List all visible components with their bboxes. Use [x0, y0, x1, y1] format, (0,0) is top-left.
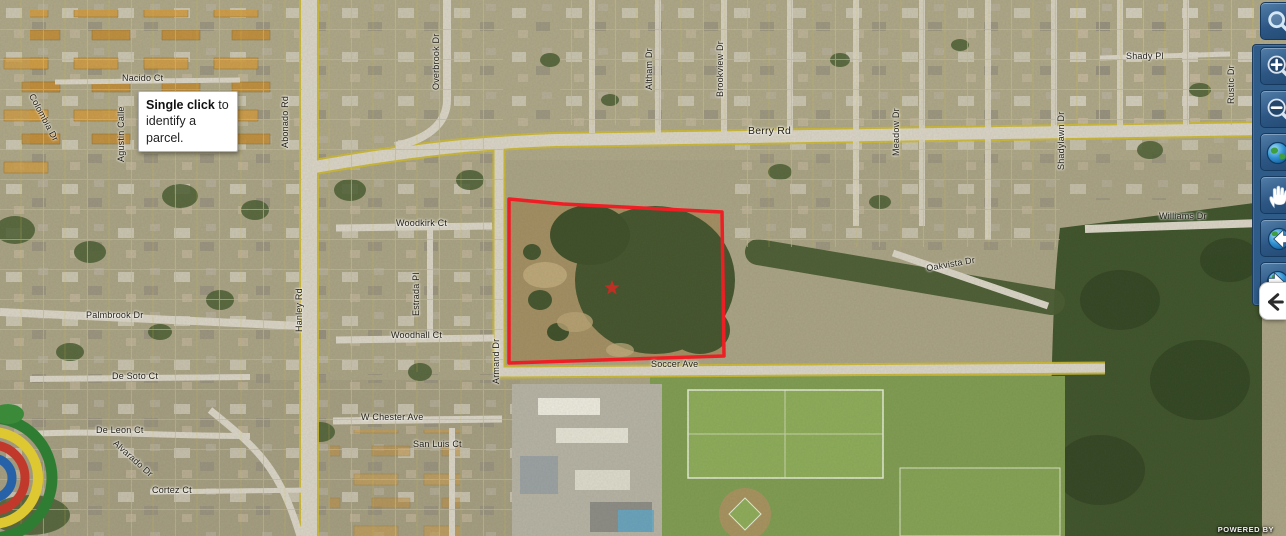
street-label: Hanley Rd [294, 288, 304, 332]
full-extent-globe-icon [1265, 139, 1286, 167]
zoom-out-button[interactable] [1260, 90, 1286, 128]
map-toolbar [1252, 0, 1286, 320]
street-label: Nacido Ct [122, 73, 163, 83]
street-label: Overbrook Dr [431, 34, 441, 90]
identify-tooltip: Single click to identify a parcel. [138, 91, 238, 152]
gis-map-viewer: Nacido Ct Abonado Rd Hanley Rd Berry Rd … [0, 0, 1286, 536]
street-label: De Soto Ct [112, 371, 158, 381]
street-label: Palmbrook Dr [86, 310, 143, 320]
street-label: De Leon Ct [96, 425, 144, 435]
street-label: Shadylawn Dr [1056, 112, 1066, 170]
street-label: Rustic Dr [1226, 65, 1236, 104]
tooltip-bold-text: Single click [146, 98, 215, 112]
pan-hand-icon [1265, 182, 1286, 210]
zoom-out-icon [1265, 96, 1286, 124]
street-label: Berry Rd [748, 125, 791, 137]
zoom-in-icon [1265, 53, 1286, 81]
street-label: W Chester Ave [361, 412, 423, 422]
street-label: Cortez Ct [152, 485, 192, 495]
street-label: Abonado Rd [280, 96, 290, 148]
search-icon [1265, 8, 1286, 36]
street-label: Brookview Dr [715, 41, 725, 97]
collapse-left-icon [1264, 290, 1286, 314]
aerial-map[interactable] [0, 0, 1286, 536]
pan-button[interactable] [1260, 176, 1286, 214]
identify-search-button[interactable] [1260, 2, 1286, 40]
street-label: Soccer Ave [651, 359, 698, 369]
street-label: San Luis Ct [413, 439, 462, 449]
collapse-panel-button[interactable] [1259, 282, 1286, 320]
powered-by-label: POWERED BY [1218, 525, 1274, 534]
previous-extent-button[interactable] [1260, 219, 1286, 257]
street-label: Meadow Dr [891, 108, 901, 156]
street-label: Williams Dr [1159, 211, 1207, 221]
street-label: Estrada Pl [411, 272, 421, 316]
street-label: Armand Dr [491, 339, 501, 384]
previous-extent-icon [1265, 225, 1286, 253]
street-label: Altham Dr [644, 48, 654, 90]
street-label: Shady Pl [1126, 51, 1164, 61]
zoom-in-button[interactable] [1260, 47, 1286, 85]
street-label: Woodhall Ct [391, 330, 442, 340]
street-label: Woodkirk Ct [396, 218, 447, 228]
full-extent-button[interactable] [1260, 133, 1286, 171]
street-label: Agustin Calle [116, 106, 126, 162]
